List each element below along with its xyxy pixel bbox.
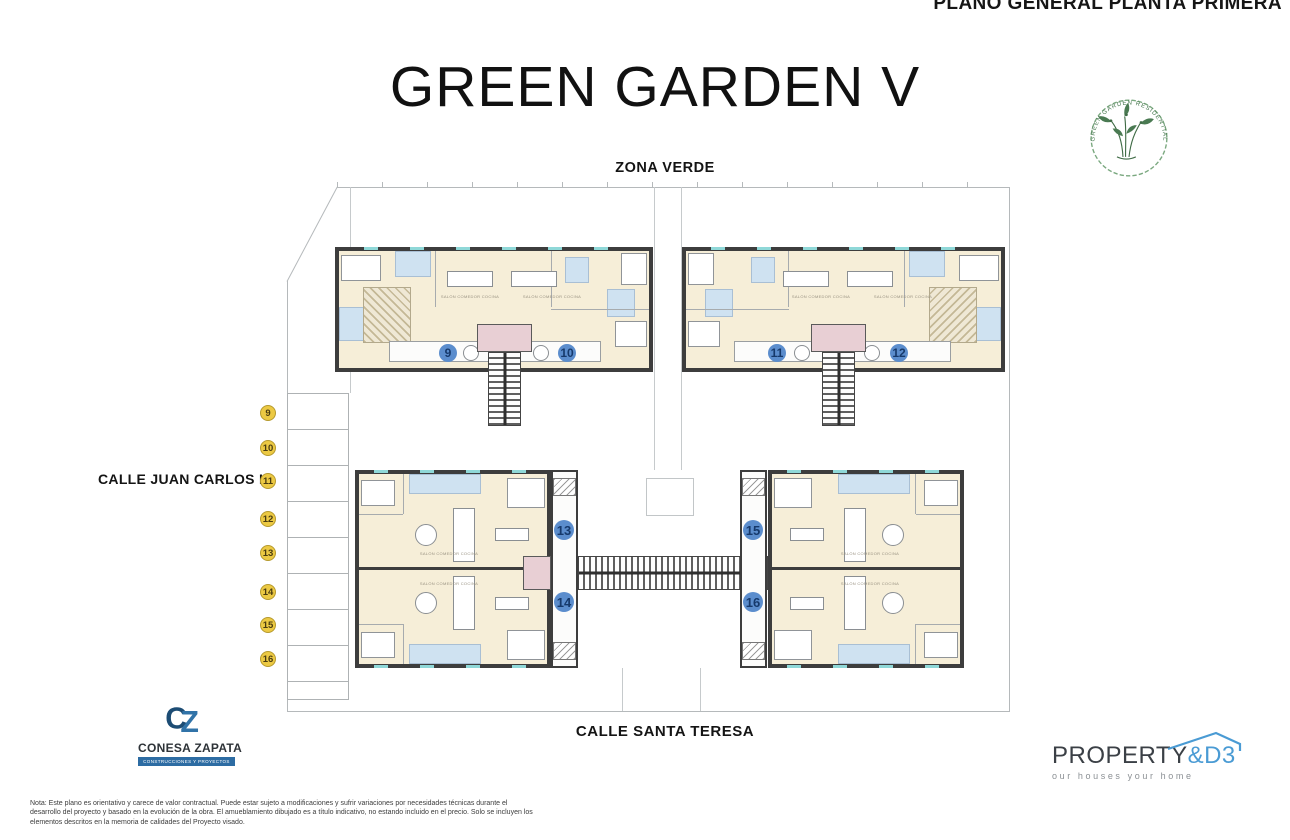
green-garden-stamp: GREEN GARDEN RESIDENTIAL: [1086, 95, 1172, 181]
bed: [774, 630, 812, 660]
parking-strip: [287, 393, 349, 700]
stair-landing: [523, 556, 551, 590]
parking-number-12: 12: [260, 511, 276, 527]
bed: [688, 321, 720, 347]
bed: [621, 253, 647, 285]
courtyard-structure: [646, 478, 694, 516]
disclaimer-note: Nota: Este plano es orientativo y carece…: [30, 799, 535, 827]
bathroom: [705, 289, 733, 317]
bed: [361, 632, 395, 658]
partition: [359, 624, 403, 625]
room-label-living: SALÓN COMEDOR COCINA: [776, 295, 866, 299]
partition: [915, 624, 916, 664]
entry-walkway: [622, 668, 701, 711]
cz-monogram-icon: C Z: [164, 700, 210, 736]
building-block-units-13-14: SALÓN COMEDOR COCINA SALÓN COMEDOR COCIN…: [355, 470, 551, 668]
sheet-title: PLANO GENERAL PLANTA PRIMERA: [933, 0, 1282, 15]
parking-number-14: 14: [260, 584, 276, 600]
party-wall: [772, 567, 960, 570]
dining-table: [415, 592, 437, 614]
bed: [507, 478, 545, 508]
bathroom: [975, 307, 1001, 341]
dining-table: [847, 271, 893, 287]
unit-number-13: 13: [554, 520, 574, 540]
partition: [403, 624, 404, 664]
conesa-zapata-name: CONESA ZAPATA: [138, 741, 258, 755]
partition: [403, 474, 404, 514]
street-label-zona-verde: ZONA VERDE: [420, 160, 910, 176]
conesa-zapata-tagline: CONSTRUCCIONES Y PROYECTOS: [138, 757, 235, 766]
unit-number-9: 9: [439, 344, 457, 362]
ground-stair-hatch: [742, 642, 765, 660]
sofa: [495, 597, 529, 610]
site-boundary-right: [1009, 187, 1010, 712]
partition: [686, 309, 789, 310]
unit-number-14: 14: [554, 592, 574, 612]
bed: [959, 255, 999, 281]
bathroom: [751, 257, 775, 283]
bed: [615, 321, 647, 347]
patio-hatch: [363, 287, 411, 343]
bathroom: [339, 307, 365, 341]
unit-number-12: 12: [890, 344, 908, 362]
unit-number-11: 11: [768, 344, 786, 362]
parking-number-9: 9: [260, 405, 276, 421]
roof-icon: [1154, 729, 1244, 753]
street-label-calle-santa-teresa: CALLE SANTA TERESA: [480, 723, 850, 740]
terrace-strip: 13 14: [551, 470, 578, 668]
room-label-living: SALÓN COMEDOR COCINA: [828, 552, 912, 556]
cz-monogram-z: Z: [180, 706, 199, 736]
room-label-living: SALÓN COMEDOR COCINA: [425, 295, 515, 299]
parking-number-10: 10: [260, 440, 276, 456]
parking-number-13: 13: [260, 545, 276, 561]
room-label-living: SALÓN COMEDOR COCINA: [407, 552, 491, 556]
bathroom: [838, 474, 910, 494]
terrace-table: [533, 345, 549, 361]
parking-number-11: 11: [260, 473, 276, 489]
bed: [688, 253, 714, 285]
partition: [915, 474, 916, 514]
partition: [551, 309, 649, 310]
property-d3-logo: PROPERTY&D3 our houses your home: [1052, 742, 1236, 781]
bed: [341, 255, 381, 281]
sofa: [790, 528, 824, 541]
parking-number-16: 16: [260, 651, 276, 667]
terrace-strip: 15 16: [740, 470, 767, 668]
bed: [507, 630, 545, 660]
bed: [924, 480, 958, 506]
unit-number-15: 15: [743, 520, 763, 540]
property-tagline: our houses your home: [1052, 771, 1236, 781]
unit-number-16: 16: [743, 592, 763, 612]
dining-table: [415, 524, 437, 546]
unit-number-10: 10: [558, 344, 576, 362]
partition: [916, 624, 960, 625]
party-wall: [359, 567, 547, 570]
room-label-living: SALÓN COMEDOR COCINA: [828, 582, 912, 586]
dining-table: [882, 592, 904, 614]
partition: [359, 514, 403, 515]
parking-number-15: 15: [260, 617, 276, 633]
site-boundary-bottom: [287, 711, 1010, 712]
stair-landing: [477, 324, 532, 352]
bathroom: [409, 474, 481, 494]
building-block-units-15-16: SALÓN COMEDOR COCINA SALÓN COMEDOR COCIN…: [768, 470, 964, 668]
terrace-table: [794, 345, 810, 361]
terrace-table: [864, 345, 880, 361]
bathroom: [409, 644, 481, 664]
stamp-plant-icon: GREEN GARDEN RESIDENTIAL: [1086, 95, 1172, 181]
room-label-living: SALÓN COMEDOR COCINA: [858, 295, 948, 299]
bathroom: [395, 251, 431, 277]
dining-table: [447, 271, 493, 287]
dining-table: [882, 524, 904, 546]
bed: [924, 632, 958, 658]
project-title: GREEN GARDEN V: [320, 54, 990, 120]
bed: [774, 478, 812, 508]
street-label-calle-juan-carlos: CALLE JUAN CARLOS I: [98, 471, 263, 487]
central-walkway: [654, 187, 682, 470]
staircase: [488, 352, 521, 426]
ground-stair-hatch: [553, 478, 576, 496]
dining-table: [783, 271, 829, 287]
partition: [916, 514, 960, 515]
stair-landing: [811, 324, 866, 352]
sofa: [790, 597, 824, 610]
room-label-living: SALÓN COMEDOR COCINA: [407, 582, 491, 586]
room-label-living: SALÓN COMEDOR COCINA: [507, 295, 597, 299]
site-boundary-diagonal: [287, 187, 338, 282]
sofa: [495, 528, 529, 541]
bathroom: [565, 257, 589, 283]
staircase: [822, 352, 855, 426]
ground-stair-hatch: [553, 642, 576, 660]
plan-sheet: PLANO GENERAL PLANTA PRIMERA GREEN GARDE…: [0, 0, 1290, 840]
ground-stair-hatch: [742, 478, 765, 496]
bed: [361, 480, 395, 506]
bathroom: [909, 251, 945, 277]
mirrored-interior: [772, 474, 960, 664]
conesa-zapata-logo: C Z CONESA ZAPATA CONSTRUCCIONES Y PROYE…: [138, 700, 258, 766]
bathroom: [838, 644, 910, 664]
dining-table: [511, 271, 557, 287]
bathroom: [607, 289, 635, 317]
